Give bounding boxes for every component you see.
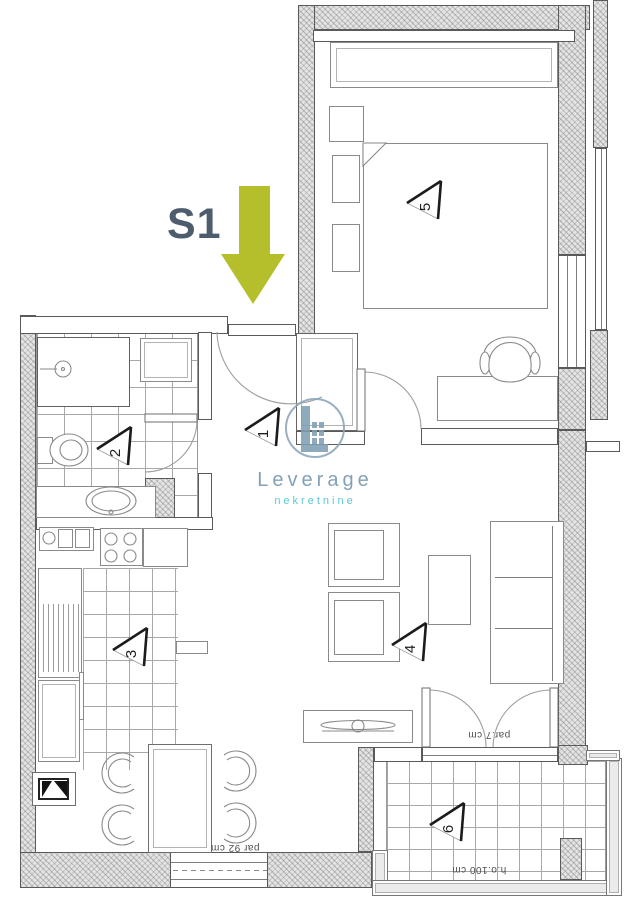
balcony-door-right-leaf [550, 688, 558, 747]
entrance-arrow [239, 186, 270, 256]
room-number-bathroom: 2 [107, 449, 124, 457]
room-number-terrace: 6 [440, 825, 457, 833]
shower-head-icon [55, 361, 71, 377]
brand-name: Leverage [248, 469, 382, 492]
burner-1 [105, 533, 117, 545]
kitchen-sink-faucet [43, 532, 55, 544]
dining-chair-2 [102, 805, 134, 845]
office-chair [480, 337, 540, 382]
balcony-door-left-leaf [422, 688, 430, 747]
burner-4 [124, 550, 136, 562]
dimension-terrace-railing: h.o.100 cm [445, 864, 513, 875]
dimension-dining-window: par 92 cm [204, 842, 266, 853]
bed-fold [363, 143, 386, 166]
unit-label: S1 [167, 200, 222, 249]
dimension-terrace-door: par.7 cm [458, 729, 520, 740]
bathroom-door-arc [145, 421, 197, 472]
room-marker-bedroom [407, 181, 441, 219]
room-marker-bathroom [97, 427, 131, 465]
room-marker-kitchen [113, 628, 147, 666]
brand-watermark: Leverage nekretnine [248, 392, 382, 507]
room-marker-living [392, 623, 426, 661]
bathroom-door-leaf [145, 414, 197, 422]
brand-logo-icon [248, 392, 382, 462]
brand-tagline: nekretnine [248, 495, 382, 507]
room-number-kitchen: 3 [123, 650, 140, 658]
shower-head-dot [62, 368, 65, 371]
dining-chair-4 [224, 803, 256, 843]
floor-plan: 1 2 3 4 5 6 par 92 cm par.7 cm h.o.100 c… [0, 0, 630, 900]
dining-chair-3 [224, 751, 256, 791]
burner-2 [124, 533, 136, 545]
dining-chair-1 [102, 753, 134, 793]
room-number-bedroom: 5 [417, 203, 434, 211]
room-marker-terrace [430, 803, 464, 841]
room-number-living: 4 [402, 645, 419, 653]
burner-3 [105, 550, 117, 562]
tv [321, 720, 395, 732]
